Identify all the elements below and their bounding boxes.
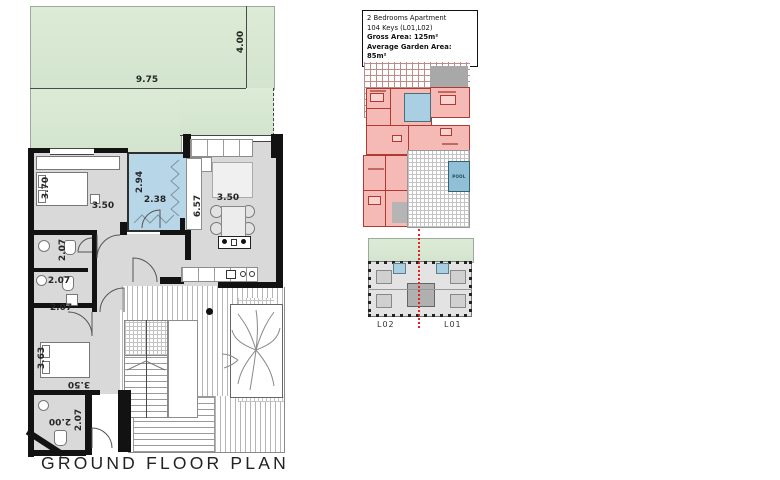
wall-segment	[118, 390, 131, 452]
key-mid-line	[368, 289, 472, 290]
key-room	[450, 294, 466, 308]
garden-area-dashed	[180, 88, 274, 136]
key-patio-blue	[436, 263, 449, 274]
kitchen-sink	[226, 270, 236, 279]
red-axis-line	[418, 229, 420, 328]
dimension-label: 2.94	[135, 171, 145, 193]
unit-wall-line	[366, 125, 432, 126]
roof-gray-block	[430, 66, 468, 88]
unit-furniture	[370, 93, 384, 102]
micro-label	[368, 168, 384, 170]
window	[50, 148, 94, 155]
dimension-line	[246, 6, 247, 88]
stove-burner	[240, 271, 246, 277]
info-box: 2 Bedrooms Apartment 104 Keys (L01,L02) …	[362, 10, 478, 67]
micro-label	[370, 90, 386, 92]
unit-wall-line	[385, 155, 386, 227]
wall-segment	[92, 230, 97, 288]
info-line-gross-area: Gross Area: 125m²	[367, 33, 473, 43]
dimension-label: 2.07	[48, 276, 70, 286]
unit-wall-line	[366, 108, 390, 109]
sink	[36, 275, 47, 286]
key-patio-blue	[393, 263, 406, 274]
kitchen-counter-bottom	[181, 267, 258, 282]
wall-segment	[180, 218, 185, 234]
toilet	[54, 430, 67, 446]
wall-segment	[276, 156, 283, 287]
micro-label	[442, 143, 458, 145]
stair-rail	[146, 320, 147, 418]
dining-table	[221, 206, 246, 237]
wall-segment	[92, 288, 97, 312]
dimension-label: 2.07	[58, 239, 68, 261]
sink	[38, 240, 50, 252]
unit-label-l01: L01	[444, 320, 462, 329]
key-garden-strip	[368, 238, 474, 263]
micro-label	[438, 91, 456, 93]
deck-area-lower	[215, 396, 284, 452]
sink	[38, 400, 49, 411]
mini-gray-block	[392, 202, 407, 223]
unit-furniture	[368, 196, 381, 205]
unit-wall-line	[390, 88, 391, 125]
wall-segment	[120, 222, 127, 235]
unit-furniture	[440, 95, 456, 105]
plan-title: GROUND FLOOR PLAN	[40, 453, 290, 474]
info-line-keys: 104 Keys (L01,L02)	[367, 24, 473, 34]
info-line-type: 2 Bedrooms Apartment	[367, 14, 473, 24]
key-room	[376, 270, 392, 284]
dimension-label: 2.38	[144, 195, 166, 205]
key-wall-marks	[368, 261, 472, 264]
stove-burner	[249, 271, 255, 277]
tree-planter	[230, 304, 283, 398]
garden-area-left	[30, 88, 182, 155]
key-room	[450, 270, 466, 284]
dimension-label: 3.70	[41, 177, 51, 199]
dimension-label: 3.50	[92, 201, 114, 211]
dimension-label: 4.00	[236, 31, 246, 53]
key-room	[376, 294, 392, 308]
deck-walkway	[168, 320, 198, 418]
dimension-label: 9.75	[136, 75, 158, 85]
dimension-label: 3.50	[68, 379, 90, 389]
wardrobe	[36, 156, 120, 170]
dimension-label: 2.07	[74, 409, 84, 431]
floor-plan-sheet: 9.75 4.00 3.70 3.50 2.94 2.38 6.57 3.50 …	[0, 0, 780, 480]
island-sink	[231, 239, 237, 246]
key-wall-marks	[368, 314, 472, 317]
wall-segment	[218, 282, 283, 288]
dimension-label: 2.07	[50, 303, 72, 313]
key-core	[407, 283, 435, 307]
wall-segment	[185, 230, 191, 260]
deck-edge	[284, 287, 285, 453]
stove-burner	[222, 239, 227, 244]
wall-segment	[85, 395, 92, 455]
dimension-line	[30, 88, 246, 89]
stove-burner	[241, 239, 246, 244]
dimension-label: 3.63	[37, 347, 47, 369]
wall-segment	[271, 134, 283, 158]
wall-segment	[34, 268, 88, 272]
column-dot	[206, 308, 213, 315]
unit-label-l02: L02	[377, 320, 395, 329]
info-line-garden-area: Average Garden Area: 85m²	[367, 43, 473, 62]
mini-pool: POOL	[448, 161, 470, 192]
dimension-label: 3.50	[217, 193, 239, 203]
unit-furniture	[440, 128, 452, 136]
kitchen-counter-top	[190, 139, 253, 157]
dimension-label: 2.00	[49, 416, 71, 426]
wall-segment	[34, 230, 92, 235]
unit-furniture	[392, 135, 402, 142]
dimension-label: 6.57	[193, 195, 203, 217]
mini-courtyard	[404, 93, 431, 122]
